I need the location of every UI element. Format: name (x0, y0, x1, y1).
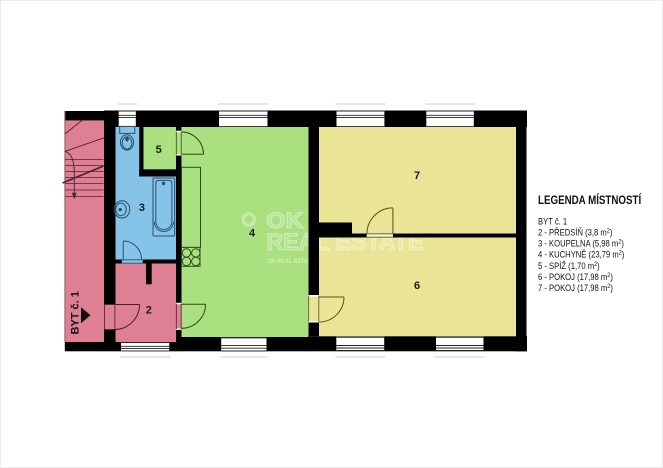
svg-text:LEGENDA MÍSTNOSTÍ: LEGENDA MÍSTNOSTÍ (538, 193, 642, 207)
svg-text:6 - POKOJ (17,98 m2): 6 - POKOJ (17,98 m2) (538, 271, 613, 282)
svg-text:BYT č. 1: BYT č. 1 (538, 216, 567, 227)
svg-text:7: 7 (414, 170, 420, 182)
svg-text:2: 2 (146, 305, 152, 317)
svg-text:6: 6 (414, 280, 420, 292)
svg-text:5 - SPÍŽ (1,70 m2): 5 - SPÍŽ (1,70 m2) (538, 260, 600, 271)
svg-text:3: 3 (139, 202, 145, 214)
svg-text:3 - KOUPELNA (5,98 m2): 3 - KOUPELNA (5,98 m2) (538, 238, 624, 249)
svg-text:5: 5 (156, 144, 162, 156)
svg-text:BYT č. 1: BYT č. 1 (70, 291, 82, 334)
svg-text:2 - PŘEDSÍŇ (3,8 m2): 2 - PŘEDSÍŇ (3,8 m2) (538, 227, 613, 238)
svg-text:7 - POKOJ (17,98 m2): 7 - POKOJ (17,98 m2) (538, 282, 613, 293)
svg-text:4: 4 (249, 227, 256, 239)
svg-text:4 - KUCHYNĚ (23,79 m2): 4 - KUCHYNĚ (23,79 m2) (538, 249, 625, 260)
svg-text:OK REAL ESTATE: OK REAL ESTATE (268, 258, 315, 265)
